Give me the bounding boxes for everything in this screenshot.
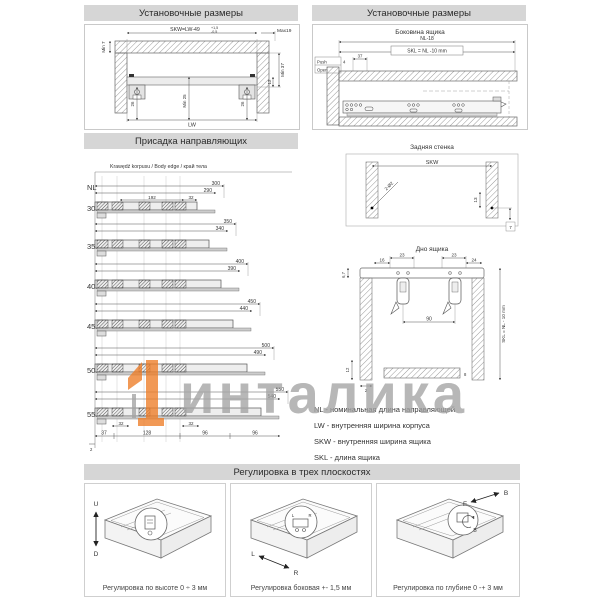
- drilling-drawing: Krawędź korpusu / Body edge / край тела …: [84, 152, 298, 467]
- dim-90-label: 90: [426, 317, 432, 323]
- row-len2-label: 540: [268, 394, 277, 400]
- dim-nl18-label: NL-18: [420, 36, 434, 42]
- label-left: L: [251, 551, 255, 558]
- side-panel-top: [339, 71, 517, 81]
- dim-16-label: 16: [379, 258, 385, 263]
- dim-skw-label: SKW=LW-49: [170, 27, 200, 33]
- adjustment-box-depth: B F B Регулировка по глубине 0 -+ 3 мм: [376, 483, 520, 597]
- rail-row-400: 400 400 390: [87, 259, 248, 296]
- row-len2-label: 390: [228, 266, 237, 272]
- dim-2b-label: 2: [365, 388, 368, 393]
- dim-23b-label: 23: [451, 253, 457, 258]
- dim-7-label: 7: [509, 225, 512, 230]
- nl-column-header: NL: [87, 183, 97, 192]
- drilling-svg: Krawędź korpusu / Body edge / край тела …: [84, 152, 298, 462]
- adjust-mechanism: [145, 516, 155, 529]
- adjustment-height-drawing: U D: [85, 486, 223, 578]
- side-column-right: [472, 278, 484, 380]
- rail-row-300: 300 300 290 192 32: [87, 181, 224, 218]
- header-install-right: Установочные размеры: [312, 5, 526, 21]
- install-right-frame: Боковина ящика NL-18 SKL = NL -10 mm Pus…: [312, 24, 528, 130]
- legend-skl: SKL - длина ящика: [314, 450, 539, 466]
- dim-13-label: 13: [473, 197, 478, 203]
- dim-skw-tol-minus: -0,5: [211, 30, 217, 34]
- side-column-left: [360, 278, 372, 380]
- adjustment-height-caption: Регулировка по высоте 0 ÷ 3 мм: [85, 585, 225, 592]
- screw-right: [250, 74, 255, 77]
- rail-row-450: 450 450 440: [87, 299, 260, 336]
- chain-128: 128: [143, 431, 152, 437]
- drawer-bottom-slab: [127, 77, 257, 85]
- install-left-frame: SKW=LW-49 +1,5 -0,5 Max19 Min 7 Min 37 1…: [84, 24, 300, 130]
- label-back: B: [504, 490, 508, 497]
- label-front: F: [463, 501, 467, 508]
- label-down: D: [94, 551, 99, 558]
- adjustment-side-caption: Регулировка боковая +- 1,5 мм: [231, 585, 371, 592]
- label-right-small: R: [308, 513, 311, 518]
- row-d32b-label: 32: [188, 421, 194, 426]
- dim-8-label: 8: [464, 372, 467, 377]
- dim-skl-label: SKL = NL -10 mm: [407, 49, 447, 55]
- rail-row-500: 500 500 490: [87, 343, 274, 380]
- dim-lw-label: LW: [188, 123, 197, 128]
- row-len-label: 350: [224, 219, 233, 225]
- hole-left: [371, 207, 374, 210]
- legend-nl: NL - номинальная длина направляющей: [314, 402, 539, 418]
- header-install-right-title: Установочные размеры: [367, 8, 471, 19]
- back-wall-drawing: Задняя стенка SKW 2-Ø2 13 7: [332, 140, 532, 245]
- dim-4-label: 4: [343, 60, 346, 65]
- dim-12-label: 12: [267, 79, 272, 84]
- dim-skw2-label: SKW: [426, 160, 439, 166]
- row-len2-label: 340: [216, 226, 225, 232]
- adjustment-box-side: L R L R Регулировка боковая +- 1,5 мм: [230, 483, 372, 597]
- cabinet-left-side: [115, 53, 127, 113]
- dim-min7-label: Min 7: [101, 41, 106, 53]
- legend-lw: LW - внутренняя ширина корпуса: [314, 418, 539, 434]
- dim-min37-label: Min 37: [280, 63, 285, 77]
- adjustment-depth-drawing: B F B: [377, 486, 517, 578]
- back-wall-right-edge: [486, 162, 498, 218]
- back-wall-svg: Задняя стенка SKW 2-Ø2 13 7: [332, 140, 532, 240]
- dim-26l-label: 26: [130, 101, 135, 106]
- dim-12b-label: 12: [345, 367, 350, 372]
- body-edge-label: Krawędź korpusu / Body edge / край тела: [110, 163, 207, 170]
- left-right-arrow: [259, 556, 289, 568]
- chain-37: 37: [101, 431, 107, 437]
- legend-skw: SKW - внутренняя ширина ящика: [314, 434, 539, 450]
- row-d32-label: 32: [188, 195, 194, 200]
- rail-row-350: 350 350 340: [87, 219, 236, 256]
- back-wall-title: Задняя стенка: [410, 144, 454, 151]
- technical-sheet: Установочные размеры Установочные размер…: [0, 0, 600, 600]
- drawer-side-drawing: Боковина ящика NL-18 SKL = NL -10 mm Pus…: [313, 25, 525, 127]
- row-d32a-label: 32: [118, 421, 124, 426]
- cabinet-front-edge: [327, 67, 339, 125]
- drawer-rail: [343, 97, 506, 116]
- chain-2: 2: [90, 447, 93, 452]
- chain-dims: 37 128 96 96 2: [89, 431, 280, 453]
- header-adjustment-title: Регулировка в трех плоскостях: [233, 467, 370, 478]
- legend: NL - номинальная длина направляющей LW -…: [314, 402, 539, 466]
- row-len2-label: 440: [240, 306, 249, 312]
- back-wall-left-edge: [366, 162, 378, 218]
- label-up: U: [94, 501, 99, 508]
- adjust-mechanism: [293, 519, 308, 527]
- drawer-side-subtitle: Боковина ящика: [395, 29, 445, 36]
- row-len-label: 450: [248, 299, 257, 305]
- open-label: Open: [317, 68, 328, 73]
- row-len2-label: 290: [204, 188, 213, 194]
- chain-96a: 96: [202, 431, 208, 437]
- cabinet-top-panel: [115, 41, 269, 53]
- row-len-label: 300: [212, 181, 221, 187]
- front-back-arrow: [471, 493, 499, 502]
- row-len-label: 400: [236, 259, 245, 265]
- label-right: R: [294, 570, 299, 577]
- dim-min25-label: Min 25: [182, 94, 187, 108]
- side-panel-bottom: [339, 117, 517, 126]
- dim-24-label: 24: [471, 258, 477, 263]
- dim-skl-v-label: SKL = NL - 10 mm: [501, 305, 506, 343]
- dim-23a-label: 23: [399, 253, 405, 258]
- row-len2-label: 490: [254, 350, 263, 356]
- row-len-label: 550: [276, 387, 285, 393]
- drawer-bottom-title: Дно ящика: [416, 246, 449, 253]
- header-install-left: Установочные размеры: [84, 5, 298, 21]
- row-len-label: 500: [262, 343, 271, 349]
- header-drilling: Присадка направляющих: [84, 133, 298, 149]
- chain-96b: 96: [252, 431, 258, 437]
- drawer-bottom-svg: Дно ящика 23 23 16 24: [332, 242, 532, 394]
- bottom-strip: [384, 368, 460, 378]
- adjustment-side-drawing: L R L R: [231, 486, 369, 578]
- bottom-slab: [360, 268, 484, 278]
- cabinet-cross-section-drawing: SKW=LW-49 +1,5 -0,5 Max19 Min 7 Min 37 1…: [85, 25, 297, 127]
- row-d192-label: 192: [148, 195, 156, 200]
- adjustment-depth-caption: Регулировка по глубине 0 -+ 3 мм: [377, 585, 519, 592]
- drawer-bottom-drawing: Дно ящика 23 23 16 24: [332, 242, 532, 399]
- screw-left: [129, 74, 134, 77]
- adjustment-box-height: U D Регулировка по высоте 0 ÷ 3 мм: [84, 483, 226, 597]
- header-install-left-title: Установочные размеры: [139, 8, 243, 19]
- dim-67-label: 6,7: [341, 271, 346, 277]
- dim-max19-label: Max19: [277, 28, 292, 34]
- push-label: Push: [317, 60, 327, 65]
- projection-lines: [102, 176, 180, 442]
- dim-37-label: 37: [358, 54, 363, 59]
- dim-26r-label: 26: [240, 101, 245, 106]
- header-drilling-title: Присадка направляющих: [135, 136, 247, 147]
